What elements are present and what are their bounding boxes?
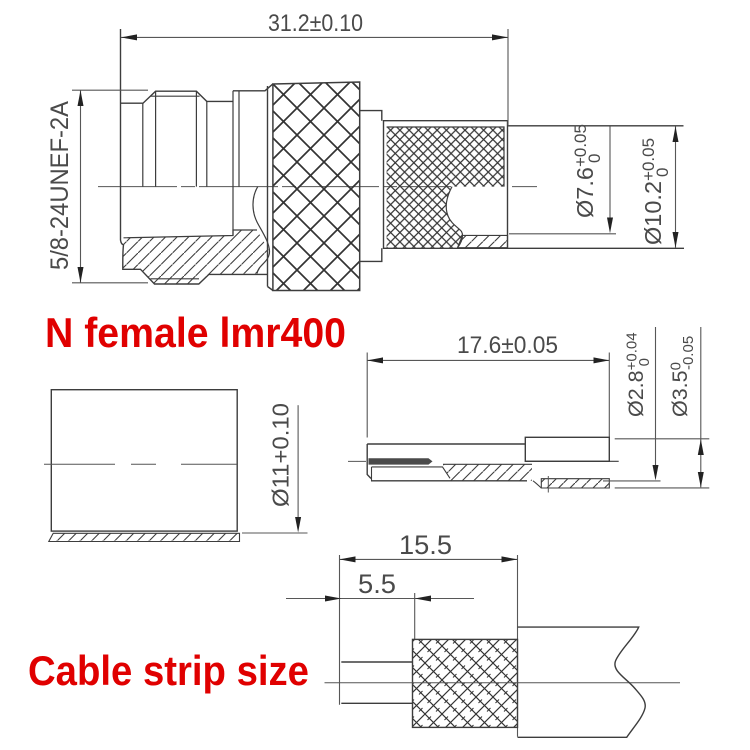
- svg-text:Ø11+0.10: Ø11+0.10: [268, 403, 294, 507]
- svg-text:5/8-24UNEF-2A: 5/8-24UNEF-2A: [46, 101, 74, 270]
- svg-text:15.5: 15.5: [399, 530, 452, 560]
- svg-text:5.5: 5.5: [358, 569, 396, 599]
- svg-text:N female lmr400: N female lmr400: [45, 309, 346, 356]
- svg-text:31.2±0.10: 31.2±0.10: [268, 10, 363, 37]
- svg-text:17.6±0.05: 17.6±0.05: [457, 332, 558, 359]
- svg-text:Cable strip size: Cable strip size: [28, 647, 309, 694]
